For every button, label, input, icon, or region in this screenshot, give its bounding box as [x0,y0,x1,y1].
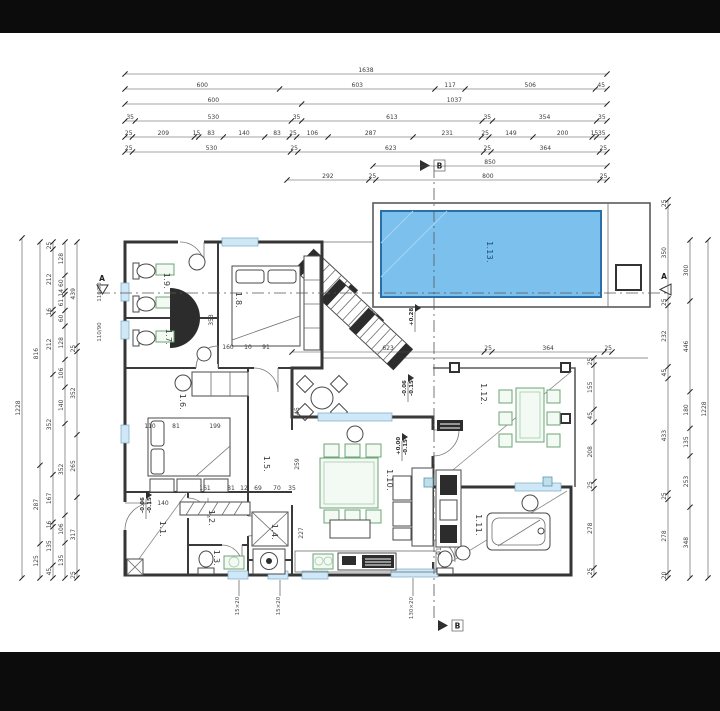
dimension-label: 60 [58,279,65,287]
interior-dimension: 45 [294,407,301,415]
dimension-label: 83 [207,130,215,137]
dimension-label: 35 [483,114,491,121]
dimension-label: 35 [598,114,606,121]
elevation-value: -0.06 [140,497,146,513]
dimension-label: 209 [158,130,170,137]
interior-dimension: 81 [172,423,180,430]
interior-dimension: 12 [240,485,248,492]
dimension-label: 1228 [701,401,708,416]
dimension-label: 15 [193,130,201,137]
dimension-label: 600 [197,82,209,89]
dimension-label: 364 [540,145,552,152]
dimension-label: 25 [661,298,668,306]
wardrobe [304,256,320,350]
terrace-column [450,363,459,372]
dimension-label: 149 [505,130,517,137]
dimension-label: 20 [661,571,668,579]
pillow [236,270,264,283]
dimension-label: 25 [483,145,491,152]
floor-plan-page: B B A A +0.28 -0.06 -0.15 +0.00 -0.15 [0,0,720,711]
dimension-label: 16 [46,308,53,316]
dimension-label: 25 [484,345,492,352]
bench-cushion [177,479,201,492]
room-label: 1.6. [178,394,187,410]
dimension-label: 135 [46,540,53,552]
washbasin [189,254,205,270]
dimension-label: 25 [125,145,133,152]
round-table [311,387,333,409]
washing-machine-center [266,558,272,564]
interior-dimension: 160 [222,344,234,351]
interior-dimension: 259 [294,458,301,470]
dimension-label: 212 [46,273,53,285]
section-label-a-right: A [661,272,667,281]
sofa-seat [393,476,411,500]
room-label: 1.2. [207,510,216,526]
dimension-label: 106 [58,523,65,535]
dimension-label: 800 [482,173,494,180]
elevation-value: -0.06 [402,380,408,396]
dimension-label: 135 [58,555,65,567]
dimension-label: 1638 [358,67,373,74]
pendant-light [347,426,363,442]
dimension-label: 287 [33,499,40,511]
wardrobe [192,372,248,396]
interior-dimension: 91 [262,344,270,351]
dimension-label: 25 [661,199,668,207]
room-label: 1.11. [474,514,483,536]
dimension-label: 354 [539,114,551,121]
dimension-label: 603 [352,82,364,89]
room-label: 1.3. [212,550,221,566]
dimension-label: 128 [58,253,65,265]
dimension-label: 25 [369,173,377,180]
floor-drain [543,477,552,486]
dimension-label: 623 [385,145,397,152]
window-size-tag: 110/90 [97,322,103,342]
pillow [268,270,296,283]
window-size-tag: 15×20 [276,596,282,615]
terrace-chair [547,390,560,403]
dimension-label: 231 [442,130,454,137]
dimension-label: 623 [382,345,394,352]
dimension-label: 364 [542,345,554,352]
dimension-label: 253 [683,476,690,488]
window-size-tag: 130×20 [409,596,415,619]
dimension-label: 140 [238,130,250,137]
bedroom-1-8 [232,256,320,350]
elevation-value: -0.15 [409,380,415,396]
terrace-chair [499,412,512,425]
dimension-label: 352 [46,419,53,431]
dining-table [320,458,378,508]
room-label: 1.8. [234,292,243,308]
toilet-bowl [199,551,213,567]
window [318,413,392,421]
dimension-label: 300 [683,265,690,277]
window [121,425,129,443]
stove-panel [342,556,356,565]
elevation-value: -0.15 [403,439,409,455]
interior-dimension: 161 [199,485,211,492]
floor-drain [424,478,433,487]
dimension-label: 278 [587,522,594,534]
toilet-bowl [137,331,155,345]
dimension-label: 25 [587,481,594,489]
dimension-label: 600 [208,97,220,104]
floor-plan-canvas: B B A A +0.28 -0.06 -0.15 +0.00 -0.15 [0,0,720,711]
dimension-label: 25 [46,242,53,250]
bidet-bowl [137,297,155,311]
dining-chair [324,444,339,457]
room-label: 1.4. [270,524,279,540]
room-label: 1.9. [162,273,171,289]
dimension-label: 61 [58,299,65,307]
terrace-column [561,363,570,372]
terrace-chair [547,434,560,447]
dimension-label: 35 [293,114,301,121]
terrace-chair [499,434,512,447]
dimension-label: 506 [525,82,537,89]
dimension-label: 348 [683,537,690,549]
door-opening [196,364,218,372]
kitchen-island [330,520,370,538]
dimension-label: 35 [126,114,134,121]
elevation-value: -0.15 [147,497,153,513]
room-label: 1.13. [485,241,494,263]
dimension-label: 45 [46,568,53,576]
dimension-label: 25 [289,130,297,137]
dimension-label: 155 [587,381,594,393]
window-size-tag: 110/90 [97,282,103,302]
dimension-label: 212 [46,338,53,350]
dimension-label: 106 [307,130,319,137]
room-label: 1.10. [385,469,394,491]
dimension-label: 45 [597,82,605,89]
dimension-label: 446 [683,340,690,352]
dimension-label: 25 [70,345,77,353]
bbq-counter [437,420,463,431]
elevation-value: +0.28 [409,308,415,326]
door-opening [429,430,437,456]
interior-dimension: 140 [157,500,169,507]
interior-dimension: 110 [144,423,156,430]
dimension-label: 232 [661,330,668,342]
interior-dimension: 69 [254,485,262,492]
interior-dimension: 199 [209,423,221,430]
window [515,483,561,491]
dimension-label: 83 [273,130,281,137]
washbasin [456,546,470,560]
dimension-label: 35 [598,130,606,137]
room-label: 1.5. [262,456,271,472]
dimension-label: 25 [70,571,77,579]
window-size-tag: 15×20 [235,596,241,615]
dimension-label: 208 [587,446,594,458]
door-opening [244,516,252,536]
dimension-label: 278 [661,530,668,542]
dimension-label: 350 [661,247,668,259]
dimension-label: 439 [70,288,77,300]
interior-dimension: 91 [436,547,443,555]
section-label-a-left: A [99,274,105,283]
elevation-value: +0.00 [396,437,402,455]
dimension-label: 1228 [15,400,22,415]
interior-dimension: 81 [227,485,235,492]
sofa-seat [393,502,411,526]
bench-cushion [150,479,174,492]
terrace-chair [499,390,512,403]
dimension-label: 352 [70,387,77,399]
washbasin [197,347,211,361]
dimension-label: 265 [70,460,77,472]
dimension-label: 25 [587,358,594,366]
dimension-label: 613 [386,114,398,121]
fridge [440,525,457,543]
dining-chair [366,444,381,457]
dimension-label: 125 [33,555,40,567]
dimension-label: 292 [322,173,334,180]
oven [440,475,457,495]
washbasin [522,495,538,511]
room-label: 1.1. [158,521,167,537]
window [228,571,248,579]
dimension-label: 167 [46,493,53,505]
dimension-label: 16 [46,520,53,528]
washbasin [175,375,191,391]
dimension-label: 25 [587,567,594,575]
dimension-label: 180 [683,404,690,416]
dimension-label: 135 [683,436,690,448]
dimension-label: 60 [58,314,65,322]
interior-dimension: 353 [208,314,215,326]
dimension-label: 25 [599,145,607,152]
terrace-column [561,414,570,423]
dimension-label: 816 [33,348,40,360]
window [121,283,129,301]
dimension-label: 25 [600,173,608,180]
dimension-label: 352 [58,463,65,475]
window [121,321,129,339]
dimension-label: 117 [444,82,456,89]
dimension-label: 45 [587,412,594,420]
dimension-label: 1037 [447,97,462,104]
dimension-label: 433 [661,430,668,442]
section-label-b-bottom: B [455,622,461,631]
window [391,569,438,577]
dimension-label: 140 [58,399,65,411]
toilet-tank [198,568,214,574]
interior-dimension: 10 [244,344,252,351]
cabinet [440,500,457,520]
dimension-label: 317 [70,529,77,541]
interior-dimension: 70 [273,485,281,492]
room-label: 1.7. [164,329,173,345]
interior-dimension: 35 [288,485,296,492]
dimension-label: 106 [58,367,65,379]
dimension-label: 200 [557,130,569,137]
dimension-label: 25 [661,492,668,500]
terrace-chair [547,412,560,425]
dining-chair [345,444,360,457]
dimension-label: 850 [484,159,496,166]
dimension-label: 14 [58,289,65,297]
dimension-label: 45 [661,369,668,377]
toilet-bowl [137,264,155,278]
toilet-tank [437,568,453,574]
pool-skimmer-box [616,265,641,290]
dimension-label: 287 [365,130,377,137]
dimension-label: 25 [290,145,298,152]
bathtub-drain [538,528,544,534]
interior-dimension: 227 [298,527,305,539]
dimension-label: 128 [58,337,65,349]
window [222,238,258,246]
dimension-label: 530 [208,114,220,121]
room-label: 1.12. [479,383,488,405]
dimension-label: 25 [125,130,133,137]
dimension-label: 25 [604,345,612,352]
dimension-label: 25 [481,130,489,137]
dimension-label: 530 [206,145,218,152]
pillow [151,449,164,474]
sofa-armrest [393,528,411,540]
